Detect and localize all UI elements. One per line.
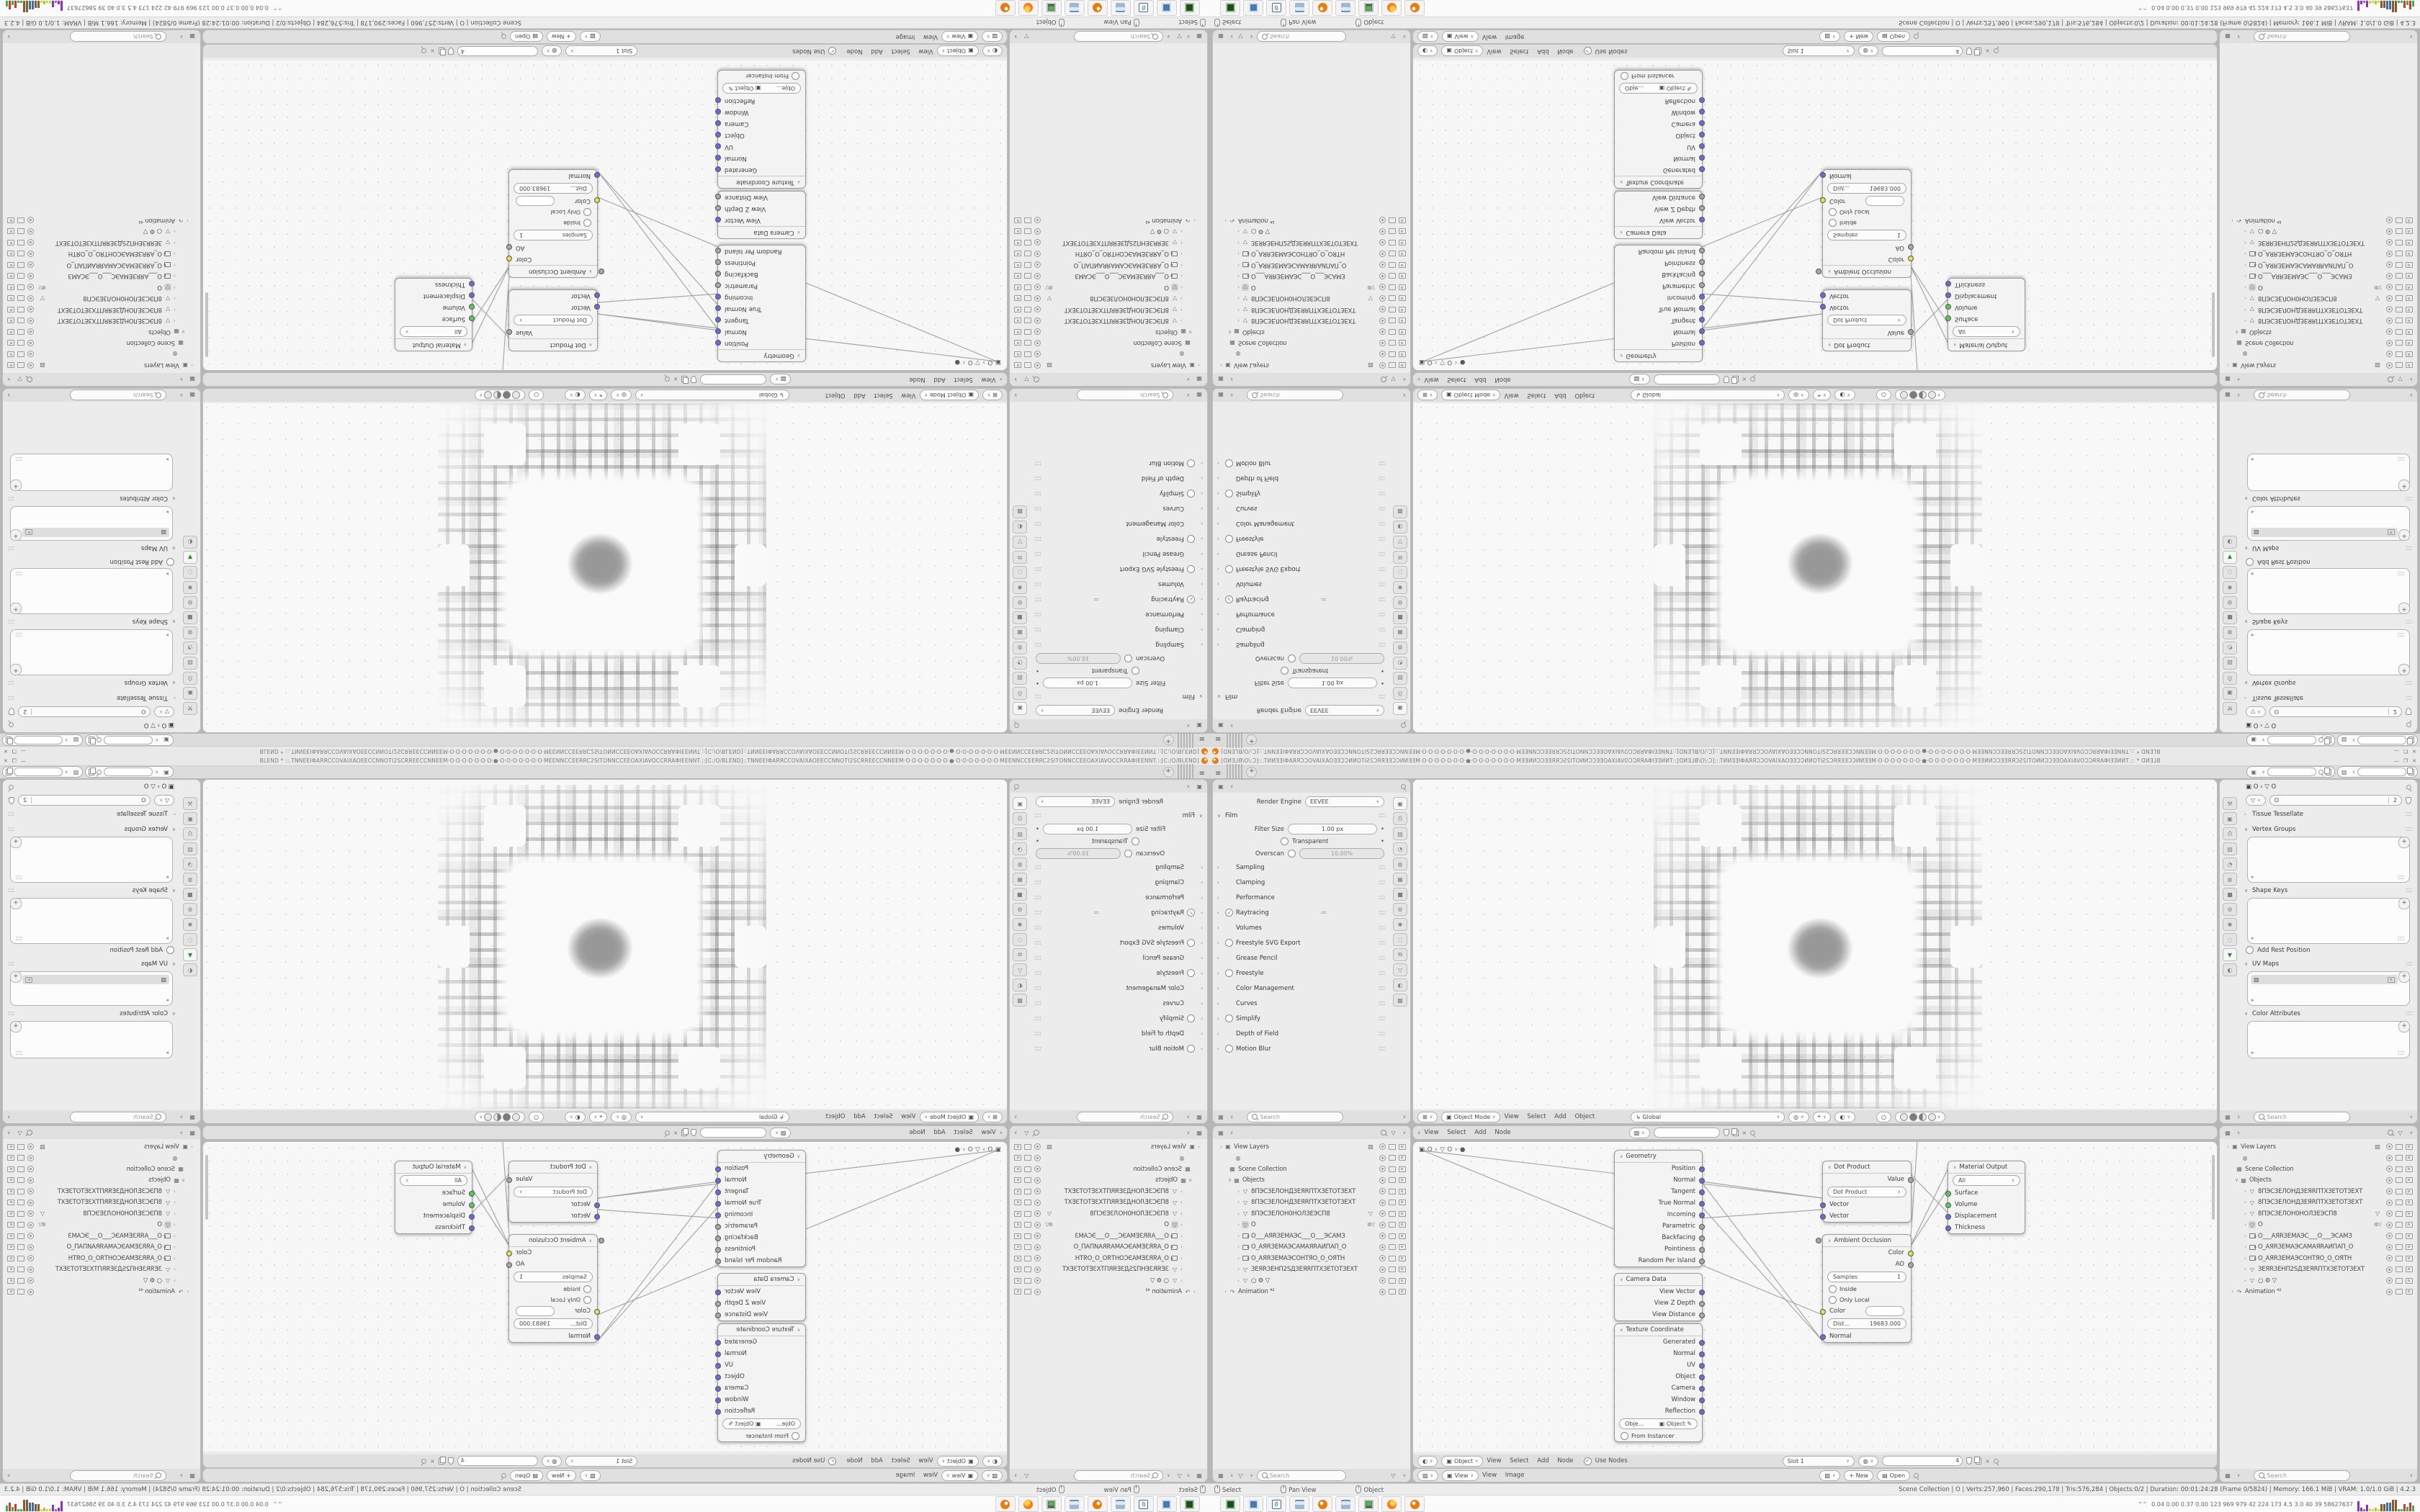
- tissue-tessellate-panel[interactable]: Tissue Tessellate: [2252, 811, 2303, 818]
- search-field[interactable]: Search: [1257, 1470, 1346, 1481]
- new-image-button[interactable]: + New: [547, 32, 576, 42]
- material-name-field[interactable]: [700, 374, 766, 384]
- samples-field[interactable]: Samples1: [1827, 230, 1906, 240]
- render-section-row[interactable]: › Curves: [1213, 996, 1390, 1011]
- shading-wireframe-icon[interactable]: [1900, 1113, 1908, 1121]
- outliner-row[interactable]: › O_АЯRЗЕМАЭСАМАЯRАИПАП_О: [1215, 1242, 1409, 1254]
- outliner-row[interactable]: › View Layers: [4, 360, 198, 372]
- hide-eye-icon[interactable]: [1379, 1289, 1386, 1295]
- hide-eye-icon[interactable]: [27, 340, 34, 346]
- disable-render-icon[interactable]: [1014, 251, 1021, 256]
- disable-render-icon[interactable]: [2406, 1222, 2413, 1228]
- disable-render-icon[interactable]: [2406, 273, 2413, 279]
- render-section-row[interactable]: › Simplify: [1030, 486, 1207, 501]
- disable-render-icon[interactable]: [1014, 340, 1021, 346]
- tab-data[interactable]: ▽: [1393, 536, 1407, 549]
- workspace-tab[interactable]: [1178, 764, 1179, 778]
- open-image-button[interactable]: ▤ Open: [510, 1470, 543, 1481]
- uv-maps-list[interactable]: + ▨ ▸: [2247, 506, 2410, 541]
- shading-rendered-icon[interactable]: [484, 1113, 492, 1121]
- hide-eye-icon[interactable]: [1034, 1177, 1041, 1184]
- disable-viewport-icon[interactable]: [17, 1289, 24, 1295]
- uv-maps-list[interactable]: + ▨ ▸: [2247, 971, 2410, 1006]
- shading-rendered-icon[interactable]: [1928, 392, 1936, 400]
- hide-eye-icon[interactable]: [1034, 217, 1041, 223]
- taskbar-app-icon[interactable]: [1018, 1496, 1039, 1512]
- disable-render-icon[interactable]: [1399, 1177, 1406, 1183]
- disable-render-icon[interactable]: [7, 307, 14, 312]
- pin-icon[interactable]: [2318, 738, 2323, 743]
- pin-icon[interactable]: [501, 1473, 506, 1478]
- section-checkbox[interactable]: [1187, 1014, 1195, 1022]
- hide-eye-icon[interactable]: [27, 1143, 34, 1150]
- outliner-row[interactable]: › View Layers: [1011, 360, 1205, 372]
- tab-view-layer[interactable]: ▨: [1393, 672, 1407, 685]
- hide-eye-icon[interactable]: [1034, 340, 1041, 346]
- add-button[interactable]: +: [10, 480, 22, 491]
- disable-render-icon[interactable]: [7, 1177, 14, 1183]
- disable-render-icon[interactable]: [2406, 318, 2413, 323]
- render-section-row[interactable]: › Volumes: [1030, 920, 1207, 935]
- outliner-row[interactable]: › Animation ⁴²: [1215, 215, 1409, 226]
- workspace-tab[interactable]: [1180, 764, 1182, 778]
- hide-eye-icon[interactable]: [1379, 1166, 1386, 1172]
- tab-texture[interactable]: ▩: [1013, 994, 1027, 1007]
- distance-field[interactable]: Dist...19683.000: [514, 183, 593, 194]
- outliner-row[interactable]: › 8ПЭСЗЕЛОНДЗЕЯRПТХЗЕТОТЗЕХТ: [1011, 1186, 1205, 1197]
- viewport-canvas[interactable]: [1413, 780, 2217, 1109]
- outliner-row[interactable]: › View Layers: [2222, 1141, 2416, 1153]
- tab-world[interactable]: ◍: [1013, 642, 1027, 654]
- tab-material[interactable]: ◐: [1393, 978, 1407, 991]
- menu-add[interactable]: Add: [853, 1113, 865, 1120]
- hide-eye-icon[interactable]: [27, 251, 34, 257]
- disable-render-icon[interactable]: [7, 228, 14, 234]
- color-swatch[interactable]: [516, 196, 555, 206]
- material-name-field[interactable]: [1654, 1128, 1720, 1138]
- disable-viewport-icon[interactable]: [2396, 351, 2403, 357]
- transform-orientation-dropdown[interactable]: ↳ Global∨: [1631, 390, 1785, 401]
- disable-viewport-icon[interactable]: [17, 1278, 24, 1284]
- disable-viewport-icon[interactable]: [2396, 228, 2403, 234]
- tab-output[interactable]: ⎙: [183, 672, 197, 685]
- transparent-checkbox[interactable]: [1281, 837, 1289, 845]
- disable-viewport-icon[interactable]: [1389, 217, 1396, 223]
- render-section-row[interactable]: › Freestyle SVG Export: [1030, 562, 1207, 577]
- taskbar-app-icon[interactable]: [1243, 1496, 1263, 1512]
- fake-user-shield-icon[interactable]: [9, 708, 14, 716]
- render-section-row[interactable]: › Motion Blur: [1213, 1041, 1390, 1056]
- render-section-row[interactable]: › Volumes: [1030, 577, 1207, 592]
- add-rest-position-checkbox[interactable]: [166, 558, 174, 566]
- image-icon-dropdown[interactable]: ▨∨: [1819, 32, 1840, 42]
- filter-size-field[interactable]: 1.00 px: [1288, 824, 1377, 834]
- outliner-row[interactable]: [2222, 348, 2416, 360]
- pin-icon[interactable]: [1750, 377, 1755, 382]
- render-section-row[interactable]: › Freestyle SVG Export: [1213, 935, 1390, 950]
- menu-view[interactable]: View: [923, 33, 938, 40]
- hide-eye-icon[interactable]: [1379, 306, 1386, 312]
- shading-solid-icon[interactable]: [1909, 1113, 1917, 1121]
- hide-eye-icon[interactable]: [1034, 1200, 1041, 1206]
- disable-viewport-icon[interactable]: [1389, 295, 1396, 301]
- filter-icon[interactable]: [16, 376, 23, 383]
- add-button[interactable]: +: [2398, 664, 2410, 675]
- tab-particles[interactable]: ✱: [1013, 918, 1027, 931]
- transform-orientation-dropdown[interactable]: ↳ Global∨: [1631, 1112, 1785, 1122]
- disable-render-icon[interactable]: [2406, 1144, 2413, 1150]
- hide-eye-icon[interactable]: [27, 1255, 34, 1261]
- outliner-row[interactable]: Scene Collection: [2222, 338, 2416, 349]
- unlink-icon[interactable]: ×: [673, 377, 678, 383]
- disable-viewport-icon[interactable]: [17, 1200, 24, 1205]
- disable-render-icon[interactable]: [1014, 318, 1021, 323]
- tab-data-active[interactable]: ▼: [2223, 948, 2237, 961]
- render-section-row[interactable]: › Volumes: [1213, 577, 1390, 592]
- disable-render-icon[interactable]: [1014, 262, 1021, 268]
- from-instancer-checkbox[interactable]: [792, 72, 799, 80]
- menu-view[interactable]: View: [1482, 33, 1497, 40]
- tissue-tessellate-panel[interactable]: Tissue Tessellate: [117, 811, 168, 818]
- maximize-button[interactable]: ❐: [2403, 758, 2408, 764]
- node-dot-product[interactable]: ∨Dot Product Value Dot Product∨ Vector V…: [1822, 1161, 1912, 1223]
- render-section-row[interactable]: › Curves: [1030, 996, 1207, 1011]
- disable-render-icon[interactable]: [1399, 1289, 1406, 1295]
- outliner-row[interactable]: › O_АЯRЗЕМАЭСОНТЯО_О_ОЯТН: [2222, 1253, 2416, 1264]
- editor-type-dropdown[interactable]: ◐∨: [982, 1456, 1003, 1467]
- outliner-row[interactable]: › ○ ⚙ ▽: [4, 1275, 198, 1287]
- tab-material[interactable]: ◐: [2223, 963, 2237, 976]
- tab-modifiers[interactable]: ⚙: [2223, 596, 2237, 609]
- new-image-button[interactable]: + New: [547, 1470, 576, 1481]
- inside-checkbox[interactable]: [583, 219, 591, 227]
- filter-size-field[interactable]: 1.00 px: [1288, 678, 1377, 688]
- disable-viewport-icon[interactable]: [17, 340, 24, 346]
- shading-rendered-icon[interactable]: [484, 392, 492, 400]
- search-field[interactable]: Search: [1077, 1112, 1173, 1122]
- editor-type-dropdown[interactable]: ▨∨: [1417, 1470, 1438, 1481]
- disable-viewport-icon[interactable]: [1389, 1256, 1396, 1261]
- filter-icon[interactable]: [1196, 392, 1203, 399]
- disable-viewport-icon[interactable]: [17, 1144, 24, 1150]
- viewport-3d[interactable]: ⊞∨ ▣ Object Mode∨ View Select Add Object…: [1413, 780, 2217, 1123]
- fake-user-shield-icon[interactable]: [1966, 48, 1972, 55]
- outliner-row[interactable]: › O_АЯRЗЕМАЭСАМАЯRАИПАП_О: [4, 259, 198, 271]
- outliner-row[interactable]: › 8ПЭСЗЕЛОНДЗЕЯRПТХЗЕТОТЗЕХТ: [1215, 304, 1409, 315]
- outliner-row[interactable]: › View Layers: [4, 1141, 198, 1153]
- disable-render-icon[interactable]: [1399, 273, 1406, 279]
- outliner-row[interactable]: › O: [1215, 282, 1409, 293]
- hide-eye-icon[interactable]: [2386, 228, 2393, 235]
- workspace-tab[interactable]: [1235, 734, 1237, 748]
- outliner-row[interactable]: Scene Collection: [1011, 338, 1205, 349]
- render-section-row[interactable]: › Color Management: [1030, 516, 1207, 531]
- menu-node[interactable]: Node: [1494, 376, 1510, 383]
- disable-viewport-icon[interactable]: [17, 273, 24, 279]
- new-image-button[interactable]: + New: [1844, 32, 1873, 42]
- tab-render[interactable]: ▣: [183, 687, 197, 700]
- hide-eye-icon[interactable]: [1379, 217, 1386, 223]
- outliner-row[interactable]: Scene Collection: [2222, 1164, 2416, 1175]
- taskbar-app-icon[interactable]: [995, 1496, 1016, 1512]
- shader-node-editor[interactable]: ▣ O › ▽ O › ● ∨Geometry Position Normal …: [1413, 45, 2217, 370]
- display-mode-icon[interactable]: [1196, 1129, 1203, 1136]
- material-icon-dropdown[interactable]: ▨∨: [1629, 1128, 1650, 1138]
- workspace-tab[interactable]: [1186, 734, 1188, 748]
- section-checkbox[interactable]: [1225, 595, 1233, 603]
- hide-eye-icon[interactable]: [2386, 1200, 2393, 1206]
- menu-node[interactable]: Node: [846, 48, 862, 55]
- disable-viewport-icon[interactable]: [2396, 1278, 2403, 1284]
- disable-viewport-icon[interactable]: [2396, 1244, 2403, 1250]
- outliner-row[interactable]: › ЗЕЯRЗЕНП2SДЗЕЯRПТХЗЕТОТЗЕХТ: [1011, 1264, 1205, 1276]
- shape-keys-panel[interactable]: Shape Keys: [133, 618, 168, 626]
- disable-viewport-icon[interactable]: [1389, 273, 1396, 279]
- material-name-field[interactable]: 4: [457, 46, 538, 56]
- render-section-row[interactable]: › Raytracing ≔: [1213, 905, 1390, 920]
- tab-object[interactable]: ■: [183, 888, 197, 901]
- render-section-row[interactable]: › Curves: [1213, 501, 1390, 516]
- target-dropdown[interactable]: All∨: [1953, 326, 2020, 337]
- add-button[interactable]: +: [2398, 1021, 2410, 1032]
- render-section-row[interactable]: › Sampling: [1030, 860, 1207, 875]
- object-field[interactable]: Obje...▣ Object ✎: [1619, 1418, 1698, 1429]
- samples-field[interactable]: Samples1: [1827, 1272, 1906, 1282]
- node-canvas[interactable]: ▣ O › ▽ O › ● ∨Geometry Position Normal …: [1413, 60, 2217, 370]
- transform-orientation-dropdown[interactable]: ↳ Global∨: [635, 390, 789, 401]
- view-layer-name-field[interactable]: [2357, 768, 2406, 776]
- uv-maps-panel[interactable]: UV Maps: [141, 960, 168, 968]
- add-button[interactable]: +: [10, 898, 22, 909]
- add-button[interactable]: +: [2398, 603, 2410, 614]
- hide-eye-icon[interactable]: [1034, 1210, 1041, 1217]
- outliner-row[interactable]: ∨ Objects: [1215, 1175, 1409, 1187]
- render-engine-dropdown[interactable]: EEVEE∨: [1036, 796, 1115, 807]
- add-button[interactable]: +: [10, 603, 22, 614]
- render-section-row[interactable]: › Simplify: [1030, 1011, 1207, 1026]
- copy-icon[interactable]: [89, 737, 94, 744]
- funnel-icon[interactable]: [1023, 1472, 1030, 1479]
- tab-render[interactable]: ▣: [1393, 797, 1407, 810]
- taskbar-app-icon[interactable]: [1220, 1496, 1240, 1512]
- disable-render-icon[interactable]: [1399, 1266, 1406, 1272]
- outliner-row[interactable]: [1011, 1153, 1205, 1164]
- scrollbar[interactable]: [205, 292, 208, 357]
- render-section-row[interactable]: › Performance: [1213, 890, 1390, 905]
- menu-select[interactable]: Select: [1510, 1457, 1528, 1464]
- material-name-field[interactable]: 4: [1882, 46, 1963, 56]
- outliner-row[interactable]: ∨ Objects: [4, 326, 198, 338]
- outliner-row[interactable]: › O_АЯRЗЕМАЭСОНТЯО_О_ОЯТН: [4, 248, 198, 260]
- shader-type-dropdown[interactable]: ▣ Object∨: [937, 1456, 979, 1467]
- shape-keys-panel[interactable]: Shape Keys: [2252, 887, 2287, 894]
- tab-tool[interactable]: ⚒: [183, 797, 197, 810]
- mesh-icon-dropdown[interactable]: ▽∨: [2246, 795, 2266, 806]
- outliner-row[interactable]: › O_АЯRЗЕМАЭСАМАЯRАИПАП_О: [2222, 259, 2416, 271]
- mesh-icon-dropdown[interactable]: ▽∨: [154, 795, 174, 806]
- disable-render-icon[interactable]: [7, 1189, 14, 1194]
- disable-render-icon[interactable]: [1399, 1166, 1406, 1172]
- hide-eye-icon[interactable]: [2386, 1233, 2393, 1239]
- disable-render-icon[interactable]: [7, 273, 14, 279]
- menu-view[interactable]: View: [981, 376, 995, 383]
- outliner-row[interactable]: › 8ПЭСЗЕЛОНДЗЕЯRПТХЗЕТОТЗЕХТ: [1011, 1197, 1205, 1209]
- section-checkbox[interactable]: [1187, 909, 1195, 917]
- copy-icon[interactable]: [681, 377, 687, 383]
- outliner-row[interactable]: › ЗЕЯRЗЕНП2SДЗЕЯRПТХЗЕТОТЗЕХТ: [4, 237, 198, 248]
- slot-dropdown[interactable]: Slot 1∨: [1783, 1456, 1855, 1467]
- display-mode-icon[interactable]: [189, 1129, 196, 1136]
- from-instancer-checkbox[interactable]: [792, 1432, 799, 1440]
- menu-object[interactable]: Object: [1574, 392, 1595, 399]
- disable-viewport-icon[interactable]: [1024, 1166, 1031, 1172]
- render-section-row[interactable]: › Sampling: [1213, 637, 1390, 652]
- disable-viewport-icon[interactable]: [1389, 1278, 1396, 1284]
- filter-icon[interactable]: [2397, 1129, 2404, 1136]
- operation-dropdown[interactable]: Dot Product∨: [514, 1187, 593, 1197]
- disable-viewport-icon[interactable]: [17, 1155, 24, 1161]
- disable-viewport-icon[interactable]: [1024, 1266, 1031, 1272]
- node-dot-product[interactable]: ∨Dot Product Value Dot Product∨ Vector V…: [508, 289, 598, 351]
- minimize-button[interactable]: —: [2394, 749, 2399, 755]
- copy-icon[interactable]: [2408, 769, 2414, 775]
- pin-icon[interactable]: [501, 35, 506, 40]
- search-icon[interactable]: [2388, 377, 2393, 382]
- tab-particles[interactable]: ✱: [2223, 581, 2237, 594]
- editor-type-icon[interactable]: [1196, 783, 1203, 790]
- disable-viewport-icon[interactable]: [2396, 1289, 2403, 1295]
- only-local-checkbox[interactable]: [1829, 1296, 1837, 1304]
- maximize-button[interactable]: ❐: [2403, 749, 2408, 755]
- vertex-groups-panel[interactable]: Vertex Groups: [125, 680, 168, 687]
- disable-viewport-icon[interactable]: [1389, 251, 1396, 256]
- disable-render-icon[interactable]: [2406, 1266, 2413, 1272]
- disable-render-icon[interactable]: [7, 295, 14, 301]
- object-filter-icon[interactable]: [1176, 33, 1183, 40]
- workspace-tab[interactable]: [1232, 764, 1234, 778]
- section-checkbox[interactable]: [1225, 1014, 1233, 1022]
- render-section-row[interactable]: › Clamping: [1030, 875, 1207, 890]
- disable-viewport-icon[interactable]: [2396, 262, 2403, 268]
- target-dropdown[interactable]: All∨: [1953, 1175, 2020, 1186]
- vertex-groups-list[interactable]: +▸: [10, 837, 173, 883]
- pin-icon[interactable]: [421, 1459, 426, 1464]
- tab-scene[interactable]: ◔: [2223, 858, 2237, 870]
- add-workspace-button[interactable]: +: [1246, 767, 1257, 778]
- material-name-field[interactable]: [1654, 374, 1720, 384]
- outliner-row[interactable]: › ○ ⚙ ▽: [1215, 226, 1409, 238]
- distance-field[interactable]: Dist...19683.000: [1827, 1318, 1906, 1329]
- tab-world[interactable]: ◍: [1013, 858, 1027, 870]
- tab-physics[interactable]: ◌: [1393, 933, 1407, 946]
- disable-viewport-icon[interactable]: [1024, 1278, 1031, 1284]
- disable-viewport-icon[interactable]: [1024, 1233, 1031, 1239]
- disable-viewport-icon[interactable]: [2396, 217, 2403, 223]
- hide-eye-icon[interactable]: [1379, 1177, 1386, 1184]
- disable-render-icon[interactable]: [1399, 1222, 1406, 1228]
- mode-dropdown[interactable]: ▣ Object Mode∨: [1441, 390, 1500, 401]
- render-section-row[interactable]: › Performance: [1030, 607, 1207, 622]
- pin-icon[interactable]: [665, 1130, 670, 1135]
- taskbar-app-icon[interactable]: [1111, 1496, 1131, 1512]
- disable-viewport-icon[interactable]: [2396, 1256, 2403, 1261]
- disable-render-icon[interactable]: [7, 329, 14, 335]
- operation-dropdown[interactable]: Dot Product∨: [1827, 315, 1906, 325]
- tab-output[interactable]: ⎙: [2223, 672, 2237, 685]
- pin-icon[interactable]: [97, 738, 102, 743]
- filter-icon[interactable]: [1390, 1129, 1397, 1136]
- minimize-button[interactable]: —: [21, 758, 26, 764]
- overscan-field[interactable]: 10.00%: [1036, 848, 1121, 859]
- hamburger-menu-icon[interactable]: ≡: [1215, 770, 1221, 778]
- outliner-row[interactable]: › 8ПЭСЗЕЛОН0НОЛЗЕЭСП8: [1011, 1208, 1205, 1220]
- only-local-checkbox[interactable]: [583, 1296, 591, 1304]
- taskbar-app-icon[interactable]: [1041, 0, 1062, 16]
- scene-selector[interactable]: ∨: [85, 766, 173, 778]
- fake-user-shield-icon[interactable]: [2406, 708, 2411, 716]
- gizmo-toggle[interactable]: ○: [529, 1112, 544, 1122]
- editor-type-dropdown[interactable]: ▨∨: [1417, 32, 1438, 42]
- uv-maps-panel[interactable]: UV Maps: [2252, 960, 2279, 968]
- view-mode-dropdown[interactable]: ▣ View∨: [1442, 32, 1479, 42]
- tab-modifiers[interactable]: ⚙: [1393, 903, 1407, 916]
- render-section-row[interactable]: › Sampling: [1213, 860, 1390, 875]
- section-checkbox[interactable]: [1225, 490, 1233, 498]
- taskbar-app-icon[interactable]: [1289, 1496, 1309, 1512]
- hide-eye-icon[interactable]: [2386, 340, 2393, 346]
- outliner-row[interactable]: › 8ПЭСЗЕЛОН0НОЛЗЕЭСП8: [1011, 293, 1205, 305]
- disable-render-icon[interactable]: [1014, 295, 1021, 301]
- disable-viewport-icon[interactable]: [1024, 1244, 1031, 1250]
- disable-render-icon[interactable]: [1399, 284, 1406, 290]
- disable-viewport-icon[interactable]: [1389, 351, 1396, 357]
- editor-type-icon[interactable]: [1217, 783, 1224, 790]
- fake-user-shield-icon[interactable]: [448, 48, 454, 55]
- tab-render[interactable]: ▣: [183, 812, 197, 825]
- disable-viewport-icon[interactable]: [1024, 351, 1031, 357]
- disable-render-icon[interactable]: [1399, 1144, 1406, 1150]
- outliner-row[interactable]: › ЗЕЯRЗЕНП2SДЗЕЯRПТХЗЕТОТЗЕХТ: [1011, 237, 1205, 248]
- only-local-checkbox[interactable]: [583, 208, 591, 216]
- hide-eye-icon[interactable]: [27, 1177, 34, 1184]
- workspace-tab[interactable]: [1180, 734, 1182, 748]
- copy-icon[interactable]: [439, 1458, 444, 1464]
- disable-render-icon[interactable]: [2406, 362, 2413, 368]
- disable-render-icon[interactable]: [1014, 1155, 1021, 1161]
- disable-render-icon[interactable]: [1399, 1211, 1406, 1217]
- tab-collection[interactable]: ▦: [1013, 873, 1027, 886]
- outliner-row[interactable]: › O___АЯRЗЕМАЭС___О___ЭСАМЗ: [1011, 271, 1205, 282]
- search-field[interactable]: Search: [2254, 1470, 2350, 1481]
- section-checkbox[interactable]: [1225, 939, 1233, 947]
- hide-eye-icon[interactable]: [1034, 1222, 1041, 1228]
- node-camera-data[interactable]: ∨Camera Data View Vector View Z Depth Vi…: [1614, 191, 1703, 239]
- disable-viewport-icon[interactable]: [1024, 1144, 1031, 1150]
- menu-view[interactable]: View: [918, 1457, 933, 1464]
- disable-viewport-icon[interactable]: [17, 329, 24, 335]
- disable-render-icon[interactable]: [7, 240, 14, 246]
- outliner-row[interactable]: [4, 348, 198, 360]
- disable-render-icon[interactable]: [1399, 1189, 1406, 1194]
- uv-map-item[interactable]: ▨: [22, 975, 169, 984]
- render-section-row[interactable]: › Grease Pencil: [1030, 546, 1207, 562]
- hide-eye-icon[interactable]: [1379, 318, 1386, 324]
- disable-viewport-icon[interactable]: [2396, 1166, 2403, 1172]
- hide-eye-icon[interactable]: [1034, 1255, 1041, 1261]
- search-field[interactable]: Search: [1074, 1470, 1163, 1481]
- tab-view-layer[interactable]: ▨: [1013, 827, 1027, 840]
- disable-render-icon[interactable]: [1399, 295, 1406, 301]
